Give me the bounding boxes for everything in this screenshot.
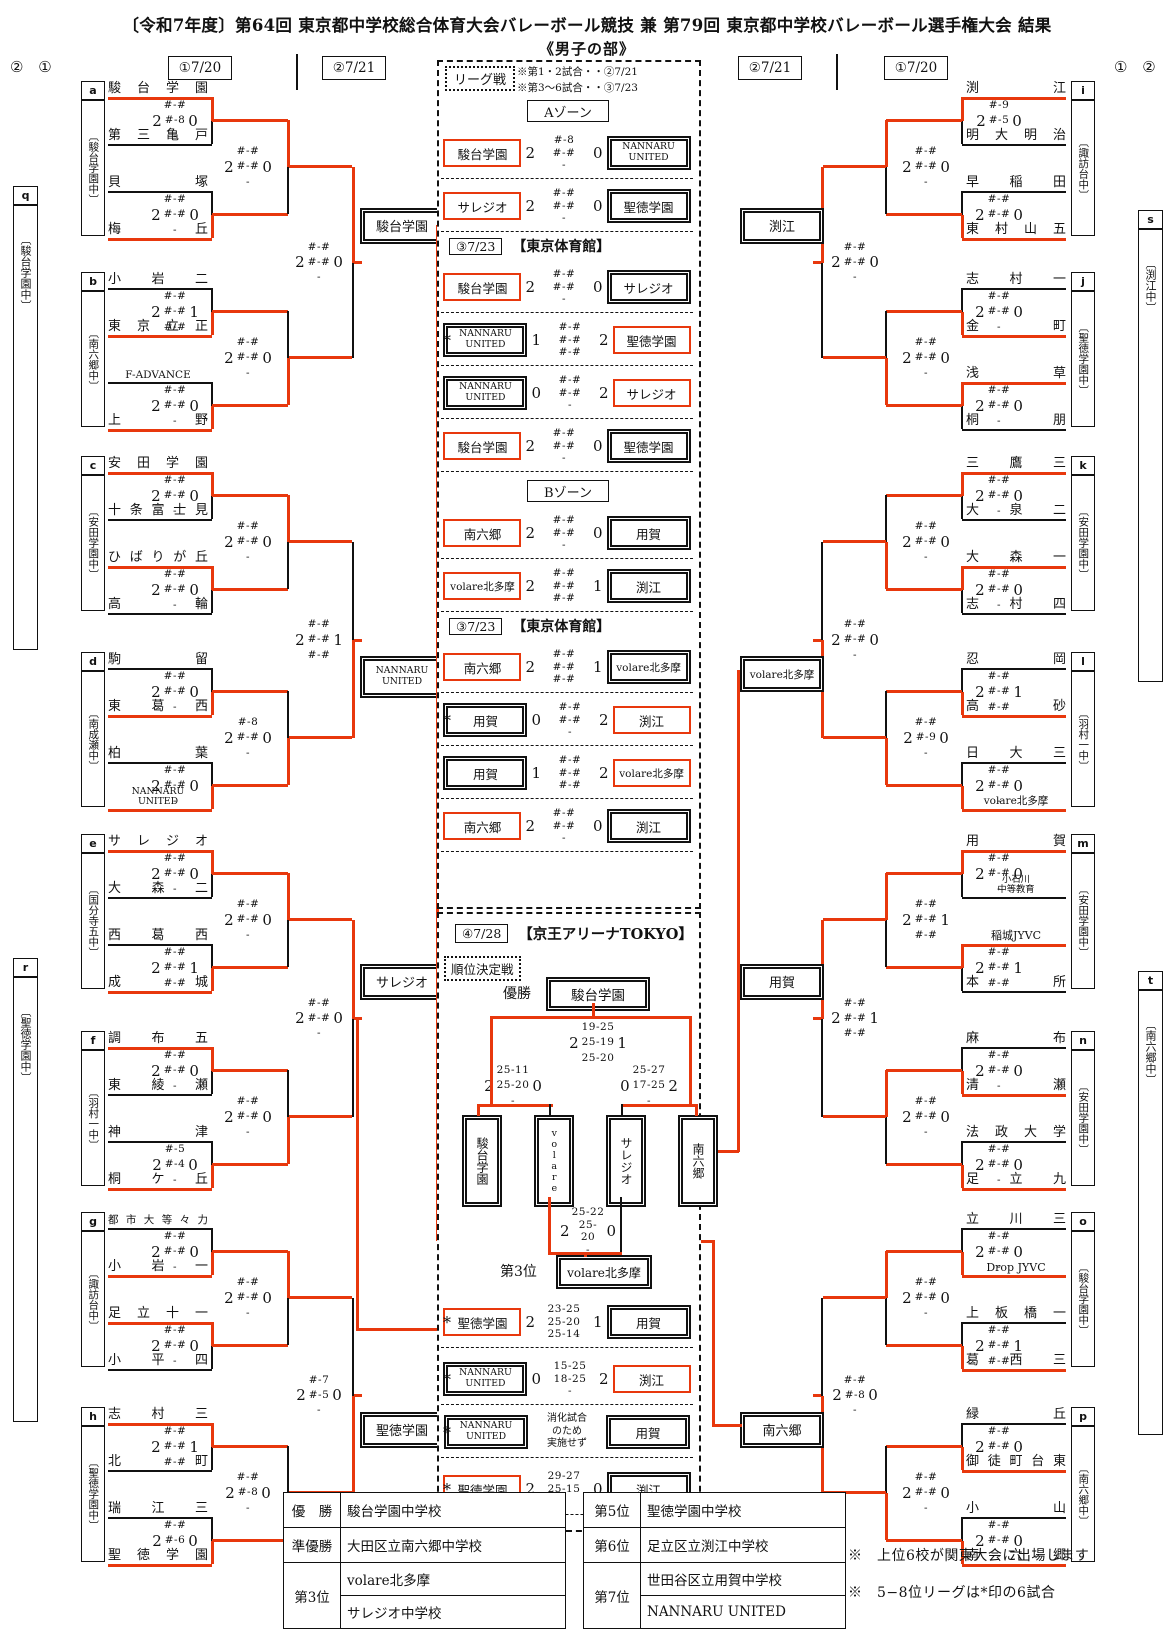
third-place-score: 25-22225-200- (560, 1206, 616, 1256)
set-line: #-# (988, 1440, 1011, 1453)
games-left: 2 (224, 533, 234, 551)
bracket-line (584, 1253, 587, 1257)
bracket-line (211, 1447, 213, 1471)
seed-letter: t (1138, 971, 1163, 990)
set-line: - (823, 271, 887, 284)
set-line: #-# (308, 256, 331, 269)
school-name-vertical: 〔南六郷中〕 (1145, 1019, 1156, 1085)
set-line: - (215, 1307, 281, 1320)
group-school-label: 〔聖徳学園中〕 (81, 1426, 105, 1562)
games-left: 2 (151, 1243, 161, 1261)
bracket-line (885, 1298, 887, 1345)
team-name: サレジオ (615, 384, 689, 403)
games-left: 2 (151, 777, 161, 795)
venue-row: ③7/23【東京体育館】 (449, 234, 693, 258)
set-line: #-9 (966, 99, 1032, 112)
set-line: #-6 (165, 1534, 186, 1547)
score-block: #-#2#-#0- (142, 670, 208, 713)
set-line: #-# (545, 754, 595, 767)
seed-letter: a (81, 81, 105, 100)
seed-letter: e (81, 834, 105, 853)
finalist-name-vertical: サレジオ (620, 1137, 632, 1185)
league-match: サレジオ2#-##-#-0聖徳学園 (441, 181, 693, 232)
rank-cell: 準優勝 (284, 1528, 341, 1563)
set-line: #-# (287, 649, 351, 662)
set-line: - (966, 795, 1032, 808)
set-line: - (142, 795, 208, 808)
school-cell: 大田区立南六郷中学校 (341, 1528, 566, 1563)
final-score: 19-25225-19125-20 (558, 1021, 638, 1064)
league-team-box: 南六郷 (443, 812, 521, 840)
games-right: 1 (617, 1034, 627, 1052)
games-left: 2 (224, 349, 234, 367)
set-line: #-# (539, 200, 589, 213)
results-table: 優 勝駿台学園中学校準優勝大田区立南六郷中学校第3位volare北多摩サレジオ中… (283, 1492, 566, 1629)
zone-title: Aゾーン (527, 100, 609, 122)
team-row: 渕江 (966, 77, 1066, 96)
set-line: #-8 (238, 1486, 259, 1499)
set-line: #-# (915, 1110, 938, 1123)
set-line: #-# (545, 779, 595, 792)
set-line: #-# (966, 1355, 1032, 1368)
set-line: #-# (215, 1471, 281, 1484)
score-block: #-#2#-#0- (966, 1425, 1032, 1468)
bracket-line (961, 590, 963, 614)
school-cell: 足立区立渕江中学校 (641, 1528, 846, 1563)
set-line: #-# (308, 633, 331, 646)
group-school-label: 〔安田学園中〕 (1071, 853, 1095, 989)
games-right: 1 (189, 303, 199, 321)
bracket-line (961, 566, 964, 590)
games-left: 2 (902, 1484, 912, 1502)
set-line: #-# (142, 1049, 208, 1062)
games-right: 0 (868, 1386, 878, 1404)
set-line: - (287, 1027, 351, 1040)
set-line: #-# (142, 852, 208, 865)
games-right: 0 (262, 533, 272, 551)
games-right: 1 (333, 631, 343, 649)
bracket-line (352, 542, 354, 640)
team-row: 瑞江三 (108, 1497, 208, 1516)
qf-winner-box: NANNARUUNITED (360, 656, 444, 698)
bracket-line (211, 668, 213, 692)
set-line: #-# (988, 1245, 1011, 1258)
bracket-line (211, 406, 214, 430)
score-block: #-#2#-#0- (966, 290, 1032, 333)
group-school-label: 〔駿台学園中〕 (1071, 1231, 1095, 1367)
team-name: 忍岡 (966, 648, 1066, 667)
games-right: 0 (869, 253, 879, 271)
bracket-line (813, 1394, 821, 1397)
finalist-name-vertical: 駿台学園 (476, 1137, 488, 1185)
team-name: 用賀 (612, 524, 686, 543)
bracket-line (885, 1117, 887, 1164)
team-name: volare北多摩 (612, 660, 686, 675)
set-line: #-# (142, 977, 208, 990)
games-left: 2 (975, 487, 985, 505)
bracket-line (211, 1322, 214, 1346)
set-line: #-# (308, 1012, 331, 1025)
bracket-line (961, 786, 964, 810)
team-name: 上板橋一 (966, 1302, 1066, 1321)
finalist-box: volare (534, 1115, 574, 1207)
set-line: #-# (893, 716, 959, 729)
school-name-vertical: 〔安田学園中〕 (1078, 506, 1089, 580)
bracket-line (961, 191, 963, 215)
placement-match: *NANNARUUNITED消化試合のため実施せず用賀 (441, 1407, 693, 1458)
score-block: #-#2#-90- (893, 716, 959, 759)
team-name: 大森一 (966, 546, 1066, 565)
league-match: 用賀1#-##-##-#2volare北多摩 (441, 748, 693, 799)
set-line: #-# (164, 779, 187, 792)
league-team-box: NANNARUUNITED (443, 1362, 527, 1396)
set-line: #-# (539, 820, 589, 833)
school-name-vertical: 〔駿台学園中〕 (1078, 1262, 1089, 1336)
set-line: - (215, 367, 281, 380)
bracket-line (695, 1104, 698, 1116)
school-cell: 聖徳学園中学校 (641, 1493, 846, 1528)
team-name: 駿台学園 (445, 437, 519, 456)
bracket-line (289, 736, 352, 739)
bracket-line (885, 920, 887, 967)
team-underline (108, 1369, 212, 1371)
group-school-label: 〔国分寺五中〕 (81, 853, 105, 989)
score-block: #-#2#-#0- (893, 1276, 959, 1319)
set-line: #-# (844, 633, 867, 646)
set-line: #-# (539, 567, 589, 580)
games-right: 0 (189, 1062, 199, 1080)
games-left: 2 (225, 1484, 235, 1502)
games-right: 0 (940, 1289, 950, 1307)
bracket-line (712, 1424, 742, 1427)
finals-venue-row: ④7/28【京王アリーナTOKYO】 (455, 923, 693, 944)
playoff-league-star: * (443, 711, 451, 730)
games-left: 2 (976, 112, 986, 130)
set-line: - (287, 271, 351, 284)
score-block: #-#2#-#0- (893, 1095, 959, 1138)
seed-letter: n (1071, 1031, 1095, 1050)
seed-letter: l (1071, 652, 1095, 671)
set-line: #-# (164, 867, 187, 880)
set-line: #-# (287, 618, 351, 631)
games-right: 0 (189, 777, 199, 795)
set-line: #-# (823, 1027, 887, 1040)
bracket-line (961, 692, 964, 716)
set-line: #-# (988, 867, 1011, 880)
league-team-box: 駿台学園 (443, 432, 521, 460)
bracket-line (212, 588, 288, 591)
games-right: 0 (262, 1289, 272, 1307)
games-left: 2 (151, 683, 161, 701)
qf-winner-box: 用賀 (740, 964, 824, 1000)
set-line: #-# (545, 767, 595, 780)
bracket-line (886, 1445, 962, 1448)
score-block: #-#2#-#0- (966, 852, 1032, 895)
set-scores: #-##-#- (539, 187, 589, 225)
team-name: 三鷹三 (966, 452, 1066, 471)
bracket-line (961, 288, 963, 312)
set-line: - (893, 1307, 959, 1320)
set-line: #-# (237, 351, 260, 364)
team-row: 志村三 (108, 1403, 208, 1422)
score-block: #-#2#-#0- (142, 1049, 208, 1092)
games-left: 0 (531, 1370, 541, 1388)
school-cell: 駿台学園中学校 (341, 1493, 566, 1528)
team-underline (962, 613, 1066, 615)
team-underline (108, 991, 212, 994)
seed-letter: q (13, 186, 38, 205)
bracket-line (961, 472, 964, 496)
team-name: F-ADVANCE (108, 369, 208, 381)
team-row: 小岩二 (108, 268, 208, 287)
games-right: 0 (1012, 112, 1022, 130)
bracket-line (211, 1165, 214, 1189)
team-name: 南六郷 (445, 658, 519, 677)
set-line: - (545, 399, 595, 412)
set-line: 25-20 (573, 1219, 604, 1244)
team-name: 駿台学園 (445, 278, 519, 297)
set-line: #-# (915, 351, 938, 364)
team-underline (962, 238, 1066, 241)
set-line: #-# (164, 961, 187, 974)
bracket-line (289, 918, 352, 921)
bracket-line (823, 356, 886, 359)
league-team-box: NANNARUUNITED (443, 376, 527, 410)
set-line: - (539, 539, 589, 552)
school-cell: volare北多摩 (341, 1563, 566, 1596)
venue-date: ③7/23 (449, 238, 502, 255)
score-block: #-#2#-#0- (142, 1230, 208, 1273)
games-left: 2 (975, 865, 985, 883)
qf-winner-box: サレジオ (360, 964, 444, 1000)
set-line: #-# (893, 336, 959, 349)
set-line: #-# (539, 514, 589, 527)
set-line: #-# (893, 1471, 959, 1484)
bracket-line (352, 1396, 355, 1494)
set-line: #-# (893, 145, 959, 158)
bracket-line (287, 873, 290, 920)
bracket-line (885, 495, 887, 542)
games-left: 2 (151, 1438, 161, 1456)
set-line: #-# (966, 852, 1032, 865)
bracket-line (961, 762, 963, 786)
league-team-box: volare北多摩 (443, 572, 521, 600)
semifinal-score: 25-27017-252- (618, 1064, 680, 1107)
set-line: #-# (539, 440, 589, 453)
group-school-label: 〔安田学園中〕 (1071, 475, 1095, 611)
school-name-vertical: 〔羽村一中〕 (88, 1087, 99, 1150)
footnote: ※ 5−8位リーグは*印の6試合 (848, 1582, 1055, 1602)
set-line: #-# (539, 648, 589, 661)
bracket-line (212, 119, 288, 122)
league-match: *NANNARUUNITED1#-##-##-#2聖徳学園 (441, 315, 693, 366)
school-name-vertical: 〔国分寺五中〕 (88, 884, 99, 958)
set-line: #-# (893, 1095, 959, 1108)
group-school-label: 〔安田学園中〕 (81, 475, 105, 611)
team-name: 小岩二 (108, 268, 208, 287)
set-line: #-# (893, 1276, 959, 1289)
games-right: 0 (869, 631, 879, 649)
games-right: 0 (532, 1077, 542, 1095)
set-line: 15-25 (545, 1360, 595, 1373)
team-name: 南六郷 (445, 524, 519, 543)
team-row: F-ADVANCE (108, 362, 208, 381)
team-row: 貝塚 (108, 171, 208, 190)
score-block: #-#2#-80- (823, 1374, 887, 1417)
round-date-box: ①7/20 (884, 56, 948, 80)
games-left: 2 (525, 144, 535, 162)
games-left: 2 (902, 533, 912, 551)
team-underline (108, 1275, 212, 1278)
team-row: 法政大学 (966, 1121, 1066, 1140)
round-date-box: ②7/21 (738, 56, 802, 80)
school-name-vertical: 〔渕江中〕 (1145, 258, 1156, 313)
set-line: #-7 (287, 1374, 351, 1387)
games-left: 2 (151, 581, 161, 599)
champion-label: 優勝 (503, 983, 531, 1003)
set-line: #-# (539, 807, 589, 820)
team-name: 用賀 (612, 1313, 686, 1332)
set-line: #-# (164, 399, 187, 412)
bracket-line (287, 311, 289, 358)
team-underline (962, 715, 1066, 718)
bracket-line (289, 165, 352, 168)
score-block: #-#2#-#1#-# (966, 946, 1032, 989)
team-underline (108, 238, 212, 241)
bracket-line (289, 1115, 352, 1118)
bracket-line (289, 356, 352, 359)
score-block: #-#2#-#0- (893, 520, 959, 563)
bracket-line (212, 404, 288, 407)
school-name-vertical: 〔南六郷中〕 (1078, 1463, 1089, 1526)
set-line: - (539, 293, 589, 306)
bracket-line (885, 311, 887, 358)
games-right: 0 (189, 487, 199, 505)
score-block: #-#2#-#0- (142, 568, 208, 611)
team-name: 都市大等々力 (108, 1212, 208, 1227)
bracket-line (886, 1069, 962, 1072)
set-line: - (966, 1080, 1032, 1093)
bracket-line (621, 1104, 698, 1107)
bracket-line (886, 588, 962, 591)
set-line: #-# (966, 1230, 1032, 1243)
league-team-box: 渕江 (607, 809, 691, 843)
seed-letter: f (81, 1031, 105, 1050)
team-name: サレジオ (445, 197, 519, 216)
bracket-line (961, 850, 964, 874)
team-underline (108, 429, 212, 432)
set-line: #-# (966, 1425, 1032, 1438)
bracket-line (354, 261, 362, 264)
pool-school-label: 〔駿台学園中〕 (13, 205, 38, 650)
league-match: 南六郷2#-##-##-#1volare北多摩 (441, 642, 693, 693)
score-block: #-#2#-#0- (823, 618, 887, 661)
bracket-line (211, 1346, 213, 1370)
rank-cell: 第6位 (584, 1528, 641, 1563)
venue-row: ③7/23【東京体育館】 (449, 614, 693, 638)
games-right: 1 (869, 1009, 879, 1027)
set-line: #-# (966, 1143, 1032, 1156)
school-cell: サレジオ中学校 (341, 1596, 566, 1629)
score-block: #-#2#-#1#-# (142, 1425, 208, 1468)
bracket-line (211, 382, 213, 406)
games-right: 0 (1013, 777, 1023, 795)
set-scores: 23-2525-2025-14 (539, 1303, 589, 1341)
games-right: 0 (333, 1009, 343, 1027)
score-block: #-82#-#0- (215, 716, 281, 759)
bracket-line (885, 120, 888, 167)
set-line: #-# (988, 779, 1011, 792)
bracket-line (352, 920, 355, 1019)
league-match: 南六郷2#-##-#-0用賀 (441, 508, 693, 559)
league-team-box: 南六郷 (443, 519, 521, 547)
team-name: サレジオ (365, 972, 439, 991)
set-line: #-# (142, 321, 208, 334)
set-line: #-# (142, 764, 208, 777)
qf-winner-box: 南六郷 (740, 1412, 824, 1448)
games-left: 1 (531, 764, 541, 782)
bracket-line (961, 1423, 963, 1447)
set-scores: #-##-##-# (539, 648, 589, 686)
set-line: - (215, 1502, 281, 1515)
bracket-line (885, 358, 888, 405)
score-block: #-#2#-#1#-# (966, 670, 1032, 713)
seed-letter: p (1071, 1407, 1095, 1426)
bracket-line (212, 1539, 288, 1542)
team-underline (962, 1094, 1066, 1097)
set-line: #-# (164, 685, 187, 698)
games-left: 2 (525, 197, 535, 215)
league-match: *用賀0#-##-#-2渕江 (441, 695, 693, 746)
set-line: - (142, 1355, 208, 1368)
set-line: #-# (164, 583, 187, 596)
set-line: #-# (164, 208, 187, 221)
set-scores: #-##-##-# (545, 321, 595, 359)
footnote: ※ 上位6校が関東大会に出場します (848, 1545, 1089, 1565)
games-left: 0 (620, 1077, 630, 1095)
team-row: 西葛西 (108, 924, 208, 943)
third-place-label: 第3位 (500, 1261, 537, 1281)
set-line: - (142, 224, 208, 237)
group-school-label: 〔羽村一中〕 (1071, 671, 1095, 807)
venue-name: 【東京体育館】 (512, 236, 610, 256)
bracket-line (211, 1517, 213, 1541)
bracket-line (211, 968, 214, 992)
team-name: 駿台学園 (445, 144, 519, 163)
bracket-line (354, 639, 362, 642)
set-line: #-# (287, 241, 351, 254)
team-underline (962, 1275, 1066, 1278)
set-line: #-# (966, 946, 1032, 959)
finals-tag: 順位決定戦 (444, 956, 521, 981)
team-name: 浅草 (966, 362, 1066, 381)
set-line: - (966, 224, 1032, 237)
set-line: #-5 (142, 1143, 208, 1156)
league-team-box: サレジオ (607, 270, 691, 304)
playoff-league-star: * (443, 1313, 451, 1332)
bracket-line (813, 1017, 821, 1020)
set-line: - (142, 701, 208, 714)
score-block: #-#2#-#0- (142, 474, 208, 517)
games-right: 0 (593, 437, 603, 455)
set-line: #-# (988, 1064, 1011, 1077)
set-line: - (893, 1126, 959, 1139)
bracket-line (712, 1240, 715, 1426)
games-left: 2 (902, 911, 912, 929)
set-line: #-# (893, 520, 959, 533)
team-name: volare北多摩 (445, 579, 519, 594)
set-scores: #-##-#- (539, 268, 589, 306)
